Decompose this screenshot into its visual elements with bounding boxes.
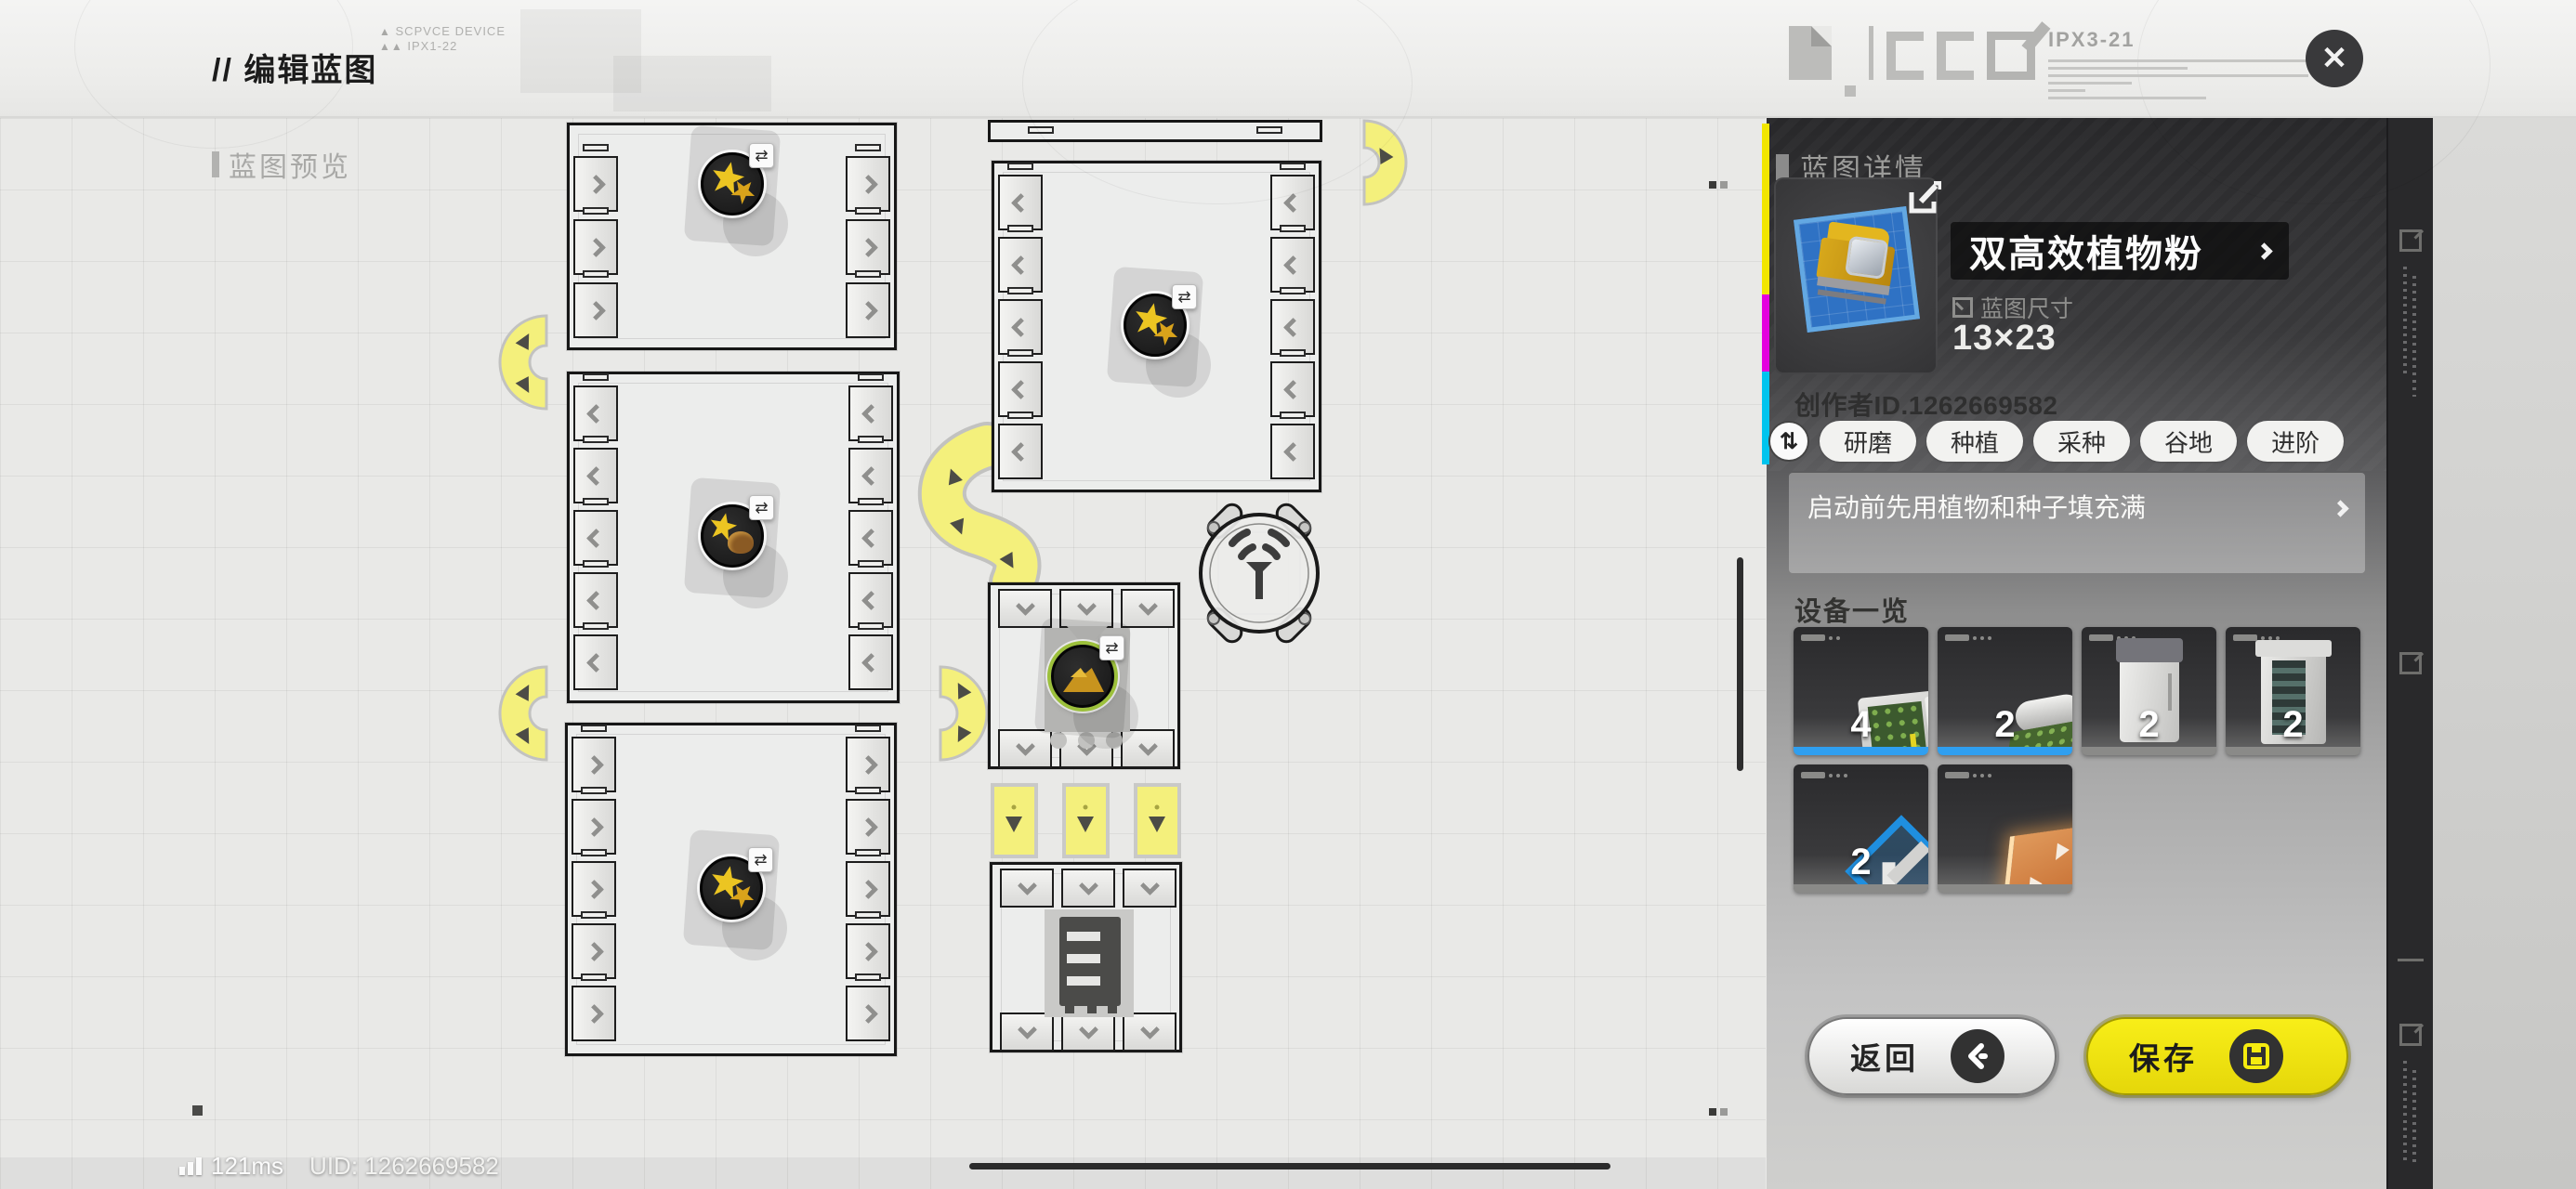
blueprint-detail-panel: 蓝图详情 双高效植物粉 蓝图尺寸 13×23 创作者ID.1262669582 … bbox=[1767, 118, 2386, 1189]
port-tab bbox=[1007, 349, 1033, 357]
swap-io-badge[interactable]: ⇄ bbox=[749, 495, 774, 520]
shelf-slot bbox=[1067, 976, 1100, 986]
canvas-corner-mark bbox=[1720, 1108, 1728, 1116]
swap-io-badge[interactable]: ⇄ bbox=[748, 847, 773, 872]
dot-square-deco bbox=[1845, 85, 1856, 97]
io-port[interactable] bbox=[573, 510, 618, 566]
chevron-right-icon bbox=[2332, 500, 2348, 516]
port-tab bbox=[581, 787, 607, 794]
conveyor-turn[interactable] bbox=[500, 316, 546, 409]
port-tab bbox=[855, 849, 881, 856]
refresh-icon: ⇅ bbox=[1780, 428, 1798, 455]
card-deco bbox=[1801, 772, 1847, 778]
binary-deco bbox=[2403, 267, 2407, 378]
io-port[interactable] bbox=[1061, 1013, 1115, 1052]
chevron-left-icon bbox=[861, 528, 880, 547]
card-accent-bar bbox=[1794, 884, 1928, 893]
chevron-right-icon bbox=[858, 817, 877, 836]
device-card-silo-cabinet[interactable]: 2 bbox=[2082, 627, 2216, 755]
canvas-corner-mark bbox=[1709, 1108, 1716, 1116]
creator-id: 创作者ID.1262669582 bbox=[1794, 385, 2058, 423]
io-port[interactable] bbox=[998, 237, 1043, 293]
tag-seed[interactable]: 采种 bbox=[2033, 421, 2130, 462]
item-name-bar[interactable]: 双高效植物粉 bbox=[1951, 222, 2289, 280]
io-port[interactable] bbox=[848, 572, 893, 628]
chevron-left-icon bbox=[861, 465, 880, 485]
description-text: 启动前先用植物和种子填充满 bbox=[1807, 488, 2334, 558]
binary-deco bbox=[2403, 1061, 2407, 1163]
back-button[interactable]: 返回 bbox=[1807, 1017, 2057, 1095]
device-card-hoist-frame[interactable]: 2 bbox=[1794, 764, 1928, 893]
status-bar: 121ms UID: 1262669582 bbox=[0, 1157, 1766, 1189]
page-title: // 编辑蓝图 bbox=[212, 45, 377, 90]
back-arrow-icon bbox=[1951, 1029, 2004, 1083]
edit-icon[interactable] bbox=[1906, 181, 1941, 216]
process-building-storage[interactable] bbox=[990, 862, 1182, 1052]
port-tab bbox=[1280, 412, 1306, 419]
canvas-corner-mark bbox=[192, 1105, 203, 1116]
io-port[interactable] bbox=[1123, 869, 1176, 908]
io-port[interactable] bbox=[573, 572, 618, 628]
port-tab bbox=[858, 436, 884, 443]
conveyor-tile-icon bbox=[2001, 824, 2072, 893]
document-icon bbox=[1789, 26, 1832, 80]
io-port[interactable] bbox=[573, 282, 618, 338]
device-card-conveyor-tile[interactable] bbox=[1938, 764, 2072, 893]
port-tab bbox=[581, 973, 607, 981]
io-port[interactable] bbox=[573, 634, 618, 690]
io-port[interactable] bbox=[846, 737, 890, 792]
io-port[interactable] bbox=[1270, 237, 1315, 293]
chevron-right-icon bbox=[584, 817, 603, 836]
io-port[interactable] bbox=[998, 299, 1043, 355]
io-port[interactable] bbox=[1000, 1013, 1054, 1052]
io-port[interactable] bbox=[848, 385, 893, 441]
chevron-down-icon bbox=[1078, 1019, 1097, 1039]
chevron-left-icon bbox=[1282, 255, 1302, 274]
port-tab bbox=[583, 560, 609, 568]
io-port[interactable] bbox=[1270, 361, 1315, 417]
card-accent-bar bbox=[1794, 747, 1928, 755]
device-grid: 4 2 2 2 2 bbox=[1794, 627, 2370, 893]
chevron-left-icon bbox=[1282, 379, 1302, 399]
chevron-down-icon bbox=[1076, 595, 1096, 615]
port-tab bbox=[583, 270, 609, 278]
shelf-slot bbox=[1067, 932, 1100, 941]
divider-bar bbox=[1869, 26, 1873, 80]
device-count: 4 bbox=[1794, 704, 1928, 746]
spec-code: IPX3-21 bbox=[2048, 28, 2327, 52]
chevron-right-icon bbox=[858, 174, 877, 193]
binary-deco bbox=[2412, 1070, 2416, 1163]
card-accent-bar bbox=[2082, 747, 2216, 755]
close-icon: ✕ bbox=[2321, 40, 2348, 77]
header-device-code: ▲ SCPVCE DEVICE ▲▲ IPX1-22 bbox=[379, 24, 506, 54]
io-port[interactable] bbox=[1270, 424, 1315, 479]
port-tab bbox=[858, 622, 884, 630]
port-tab bbox=[583, 373, 609, 381]
tag-valley[interactable]: 谷地 bbox=[2140, 421, 2237, 462]
port-tab bbox=[855, 973, 881, 981]
size-value: 13×23 bbox=[1952, 319, 2057, 359]
tag-advanced[interactable]: 进阶 bbox=[2247, 421, 2344, 462]
port-tab bbox=[855, 144, 881, 151]
save-button[interactable]: 保存 bbox=[2086, 1017, 2348, 1095]
shelf-leg bbox=[1087, 1006, 1097, 1013]
swap-io-badge[interactable]: ⇄ bbox=[1172, 284, 1197, 309]
signal-bars-icon bbox=[179, 1157, 202, 1181]
dash-deco bbox=[2398, 959, 2424, 961]
io-port[interactable] bbox=[846, 799, 890, 855]
right-deco-strip bbox=[2386, 118, 2433, 1189]
chevron-right-icon bbox=[584, 754, 603, 774]
chevron-left-icon bbox=[1282, 441, 1302, 461]
spec-block: IPX3-21 bbox=[2048, 28, 2327, 104]
io-port[interactable] bbox=[848, 510, 893, 566]
io-port[interactable] bbox=[846, 282, 890, 338]
port-tab bbox=[583, 622, 609, 630]
device-card-harvest-roller[interactable]: 2 bbox=[1938, 627, 2072, 755]
right-margin-panel bbox=[2433, 118, 2576, 1189]
io-port[interactable] bbox=[1270, 299, 1315, 355]
port-tab bbox=[855, 207, 881, 215]
port-tab bbox=[858, 373, 884, 381]
antenna-node[interactable] bbox=[1201, 501, 1318, 646]
card-deco bbox=[1945, 634, 1991, 641]
port-tab bbox=[1280, 225, 1306, 232]
chevron-down-icon bbox=[1139, 875, 1159, 895]
card-deco bbox=[1801, 634, 1840, 641]
chevron-left-icon bbox=[861, 652, 880, 672]
powder-highlight bbox=[1071, 668, 1087, 677]
device-count: 2 bbox=[1938, 704, 2072, 746]
card-accent-bar bbox=[2226, 747, 2360, 755]
back-button-label: 返回 bbox=[1850, 1034, 1919, 1078]
io-port[interactable] bbox=[846, 156, 890, 212]
powder-pile-icon bbox=[1063, 668, 1104, 692]
port-tab bbox=[855, 911, 881, 919]
gold-machine-art bbox=[1814, 221, 1901, 304]
chevron-down-icon bbox=[1015, 595, 1034, 615]
io-port[interactable] bbox=[846, 219, 890, 275]
io-port[interactable] bbox=[846, 986, 890, 1041]
io-port[interactable] bbox=[573, 219, 618, 275]
port-tab bbox=[583, 207, 609, 215]
chevron-down-icon bbox=[1015, 736, 1034, 755]
chevron-left-icon bbox=[585, 652, 605, 672]
blueprint-canvas[interactable]: 蓝图预览 bbox=[0, 118, 1766, 1189]
port-tab bbox=[858, 498, 884, 505]
chevron-right-icon bbox=[858, 237, 877, 256]
port-tab bbox=[858, 560, 884, 568]
io-port[interactable] bbox=[998, 175, 1043, 230]
chevron-down-icon bbox=[1017, 1019, 1036, 1039]
device-card-seed-planting-unit[interactable]: 4 bbox=[1794, 627, 1928, 755]
port-tab bbox=[1007, 287, 1033, 294]
edge-strip-yellow bbox=[1762, 124, 1769, 294]
header-right-deco: IPX3-21 bbox=[1789, 26, 2327, 100]
devices-title: 设备一览 bbox=[1794, 590, 1910, 629]
chevron-left-icon bbox=[1010, 255, 1030, 274]
chevron-right-icon bbox=[585, 300, 605, 320]
io-port[interactable] bbox=[846, 923, 890, 979]
port-tab bbox=[583, 498, 609, 505]
chevron-left-icon bbox=[1010, 441, 1030, 461]
io-port[interactable] bbox=[572, 737, 616, 792]
swap-io-badge[interactable]: ⇄ bbox=[1099, 635, 1124, 660]
chevron-right-icon bbox=[858, 879, 877, 898]
canvas-corner-mark bbox=[1709, 181, 1716, 189]
ping-value: 121ms bbox=[211, 1152, 283, 1181]
port-tab bbox=[1007, 412, 1033, 419]
shelf-slot bbox=[1067, 954, 1100, 963]
bracket-glyph bbox=[1937, 32, 1974, 80]
chevron-left-icon bbox=[585, 403, 605, 423]
chevron-left-icon bbox=[1010, 379, 1030, 399]
port-tab bbox=[581, 849, 607, 856]
chevron-right-icon bbox=[858, 941, 877, 960]
io-port[interactable] bbox=[572, 799, 616, 855]
header-square-deco bbox=[613, 56, 771, 111]
port-tab bbox=[1280, 287, 1306, 294]
io-port[interactable] bbox=[998, 729, 1052, 768]
chevron-left-icon bbox=[861, 403, 880, 423]
refresh-tags-button[interactable]: ⇅ bbox=[1768, 421, 1809, 462]
chevron-down-icon bbox=[1139, 1019, 1159, 1039]
io-port[interactable] bbox=[846, 861, 890, 917]
chevron-left-icon bbox=[861, 590, 880, 609]
port-tab bbox=[1007, 225, 1033, 232]
card-accent-bar bbox=[1938, 747, 2072, 755]
conveyor-turn[interactable] bbox=[500, 667, 546, 760]
tag-grind[interactable]: 研磨 bbox=[1820, 421, 1916, 462]
canvas-corner-mark bbox=[1720, 181, 1728, 189]
bracket-glyph bbox=[1886, 32, 1924, 80]
export-glyph-icon bbox=[2399, 1024, 2422, 1046]
uid-value: UID: 1262669582 bbox=[309, 1152, 499, 1181]
save-button-label: 保存 bbox=[2129, 1034, 2198, 1078]
export-glyph-icon bbox=[2399, 229, 2422, 252]
io-port[interactable] bbox=[1000, 869, 1054, 908]
io-port[interactable] bbox=[848, 634, 893, 690]
io-port[interactable] bbox=[998, 361, 1043, 417]
conveyor-turn[interactable] bbox=[940, 667, 987, 760]
seed-icon bbox=[728, 531, 754, 554]
io-port[interactable] bbox=[1121, 589, 1175, 628]
chevron-right-icon bbox=[858, 1003, 877, 1023]
io-port[interactable] bbox=[573, 448, 618, 503]
card-accent-bar bbox=[1938, 884, 2072, 893]
port-tab bbox=[581, 911, 607, 919]
port-tab bbox=[855, 787, 881, 794]
export-glyph-icon bbox=[2399, 652, 2422, 674]
shelf-leg bbox=[1065, 1006, 1074, 1013]
close-button[interactable]: ✕ bbox=[2306, 30, 2363, 87]
chevron-left-icon bbox=[585, 465, 605, 485]
io-port[interactable] bbox=[572, 986, 616, 1041]
edge-strip-magenta bbox=[1762, 294, 1769, 372]
chevron-right-icon bbox=[584, 1003, 603, 1023]
io-port[interactable] bbox=[1123, 1013, 1176, 1052]
chevron-right-icon bbox=[858, 300, 877, 320]
chevron-right-icon bbox=[858, 754, 877, 774]
device-count: 2 bbox=[2082, 704, 2216, 746]
description-box[interactable]: 启动前先用植物和种子填充满 bbox=[1789, 473, 2365, 573]
save-floppy-icon bbox=[2229, 1029, 2283, 1083]
port-tab bbox=[855, 270, 881, 278]
card-deco bbox=[1945, 772, 1991, 778]
device-count: 2 bbox=[1794, 842, 1928, 883]
shelf-leg bbox=[1108, 1006, 1117, 1013]
port-tab bbox=[583, 436, 609, 443]
vertical-scrollbar[interactable] bbox=[1737, 557, 1743, 771]
binary-deco bbox=[2412, 276, 2416, 397]
chevron-down-icon bbox=[1137, 595, 1157, 615]
chevron-right-icon bbox=[585, 237, 605, 256]
action-buttons: 返回 保存 bbox=[1807, 1017, 2348, 1095]
io-port[interactable] bbox=[848, 448, 893, 503]
chevron-right-icon bbox=[2255, 242, 2272, 259]
chevron-left-icon bbox=[585, 528, 605, 547]
chevron-down-icon bbox=[1078, 875, 1097, 895]
io-port[interactable] bbox=[572, 923, 616, 979]
chevron-right-icon bbox=[584, 941, 603, 960]
fine-print-lines bbox=[2048, 59, 2327, 99]
io-port[interactable] bbox=[573, 156, 618, 212]
tag-plant[interactable]: 种植 bbox=[1926, 421, 2023, 462]
chevron-down-icon bbox=[1137, 736, 1157, 755]
edit-pencil-icon bbox=[1987, 32, 2035, 80]
top-header-bar: ▲ SCPVCE DEVICE ▲▲ IPX1-22 // 编辑蓝图 IPX3-… bbox=[0, 0, 2576, 118]
port-tab bbox=[1007, 163, 1033, 170]
swap-io-badge[interactable]: ⇄ bbox=[749, 143, 774, 168]
chevron-right-icon bbox=[585, 174, 605, 193]
io-port[interactable] bbox=[1061, 869, 1115, 908]
chevron-down-icon bbox=[1017, 875, 1036, 895]
port-tab bbox=[583, 144, 609, 151]
io-port[interactable] bbox=[573, 385, 618, 441]
device-count: 2 bbox=[2226, 704, 2360, 746]
tags-row: ⇅ 研磨 种植 采种 谷地 进阶 bbox=[1768, 421, 2344, 462]
chevron-left-icon bbox=[585, 590, 605, 609]
chevron-left-icon bbox=[1010, 192, 1030, 212]
device-card-stack-tower[interactable]: 2 bbox=[2226, 627, 2360, 755]
size-icon bbox=[1952, 297, 1973, 318]
port-tab bbox=[855, 725, 881, 732]
io-port[interactable] bbox=[572, 861, 616, 917]
io-port[interactable] bbox=[998, 424, 1043, 479]
port-tab bbox=[581, 725, 607, 732]
port-tab bbox=[1280, 349, 1306, 357]
chevron-left-icon bbox=[1282, 317, 1302, 336]
chevron-right-icon bbox=[584, 879, 603, 898]
storage-shelf-icon bbox=[1059, 917, 1121, 1006]
item-name: 双高效植物粉 bbox=[1969, 224, 2258, 278]
chevron-left-icon bbox=[1010, 317, 1030, 336]
